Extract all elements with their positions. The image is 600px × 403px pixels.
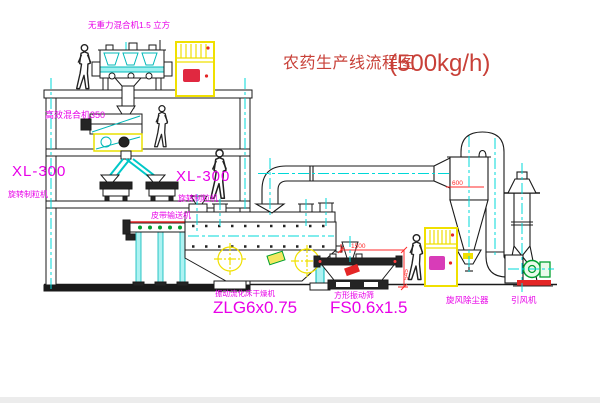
diagram-capacity: (500kg/h) — [389, 50, 490, 77]
window-edge — [0, 397, 600, 403]
pesticide-line-diagram: 无重力混合机1.5 立方 高效混合机350 XL-300 旋转制粒机 XL-30… — [0, 0, 600, 403]
person-figure — [409, 235, 423, 280]
indicator-light — [206, 46, 209, 49]
granulator-name-center: 旋转制粒机 — [178, 193, 218, 203]
floor-mixer-label: 高效混合机350 — [45, 109, 105, 120]
fan-label: 引风机 — [511, 295, 537, 305]
granulator-left — [100, 175, 132, 201]
granulator-right — [146, 175, 178, 201]
indicator-light — [451, 233, 454, 236]
granulator-model-center: XL-300 — [176, 168, 230, 185]
duct-bottom-elbow — [486, 252, 507, 277]
diagram-canvas: 无重力混合机1.5 立方 高效混合机350 XL-300 旋转制粒机 XL-30… — [0, 0, 600, 403]
control-cabinet-ground — [425, 228, 457, 286]
dim-sieve-height: 545 — [403, 269, 410, 280]
granulator-model-left: XL-300 — [12, 163, 66, 180]
dryer-name-label: 振动流化床干燥机 — [215, 288, 275, 298]
person-figure — [77, 45, 91, 89]
sieve-model-label: FS0.6x1.5 — [330, 298, 408, 317]
induced-draft-fan — [505, 255, 553, 286]
granulator-name-left: 旋转制粒机 — [8, 189, 48, 199]
dryer-model-label: ZLG6x0.75 — [213, 298, 297, 317]
exhaust-duct — [256, 158, 450, 213]
person-figure — [155, 106, 168, 147]
roof-mixer-label: 无重力混合机1.5 立方 — [88, 20, 170, 30]
belt-conveyor-label: 皮带输送机 — [151, 210, 191, 220]
cabinet-display — [429, 256, 445, 270]
fluid-bed-dryer — [185, 196, 342, 290]
cyclone-label: 旋风除尘器 — [446, 295, 489, 305]
dim-cyclone: 600 — [452, 180, 463, 187]
control-cabinet-top — [176, 42, 214, 96]
dim-sieve-length: 1500 — [351, 243, 366, 250]
cabinet-display — [183, 69, 200, 82]
